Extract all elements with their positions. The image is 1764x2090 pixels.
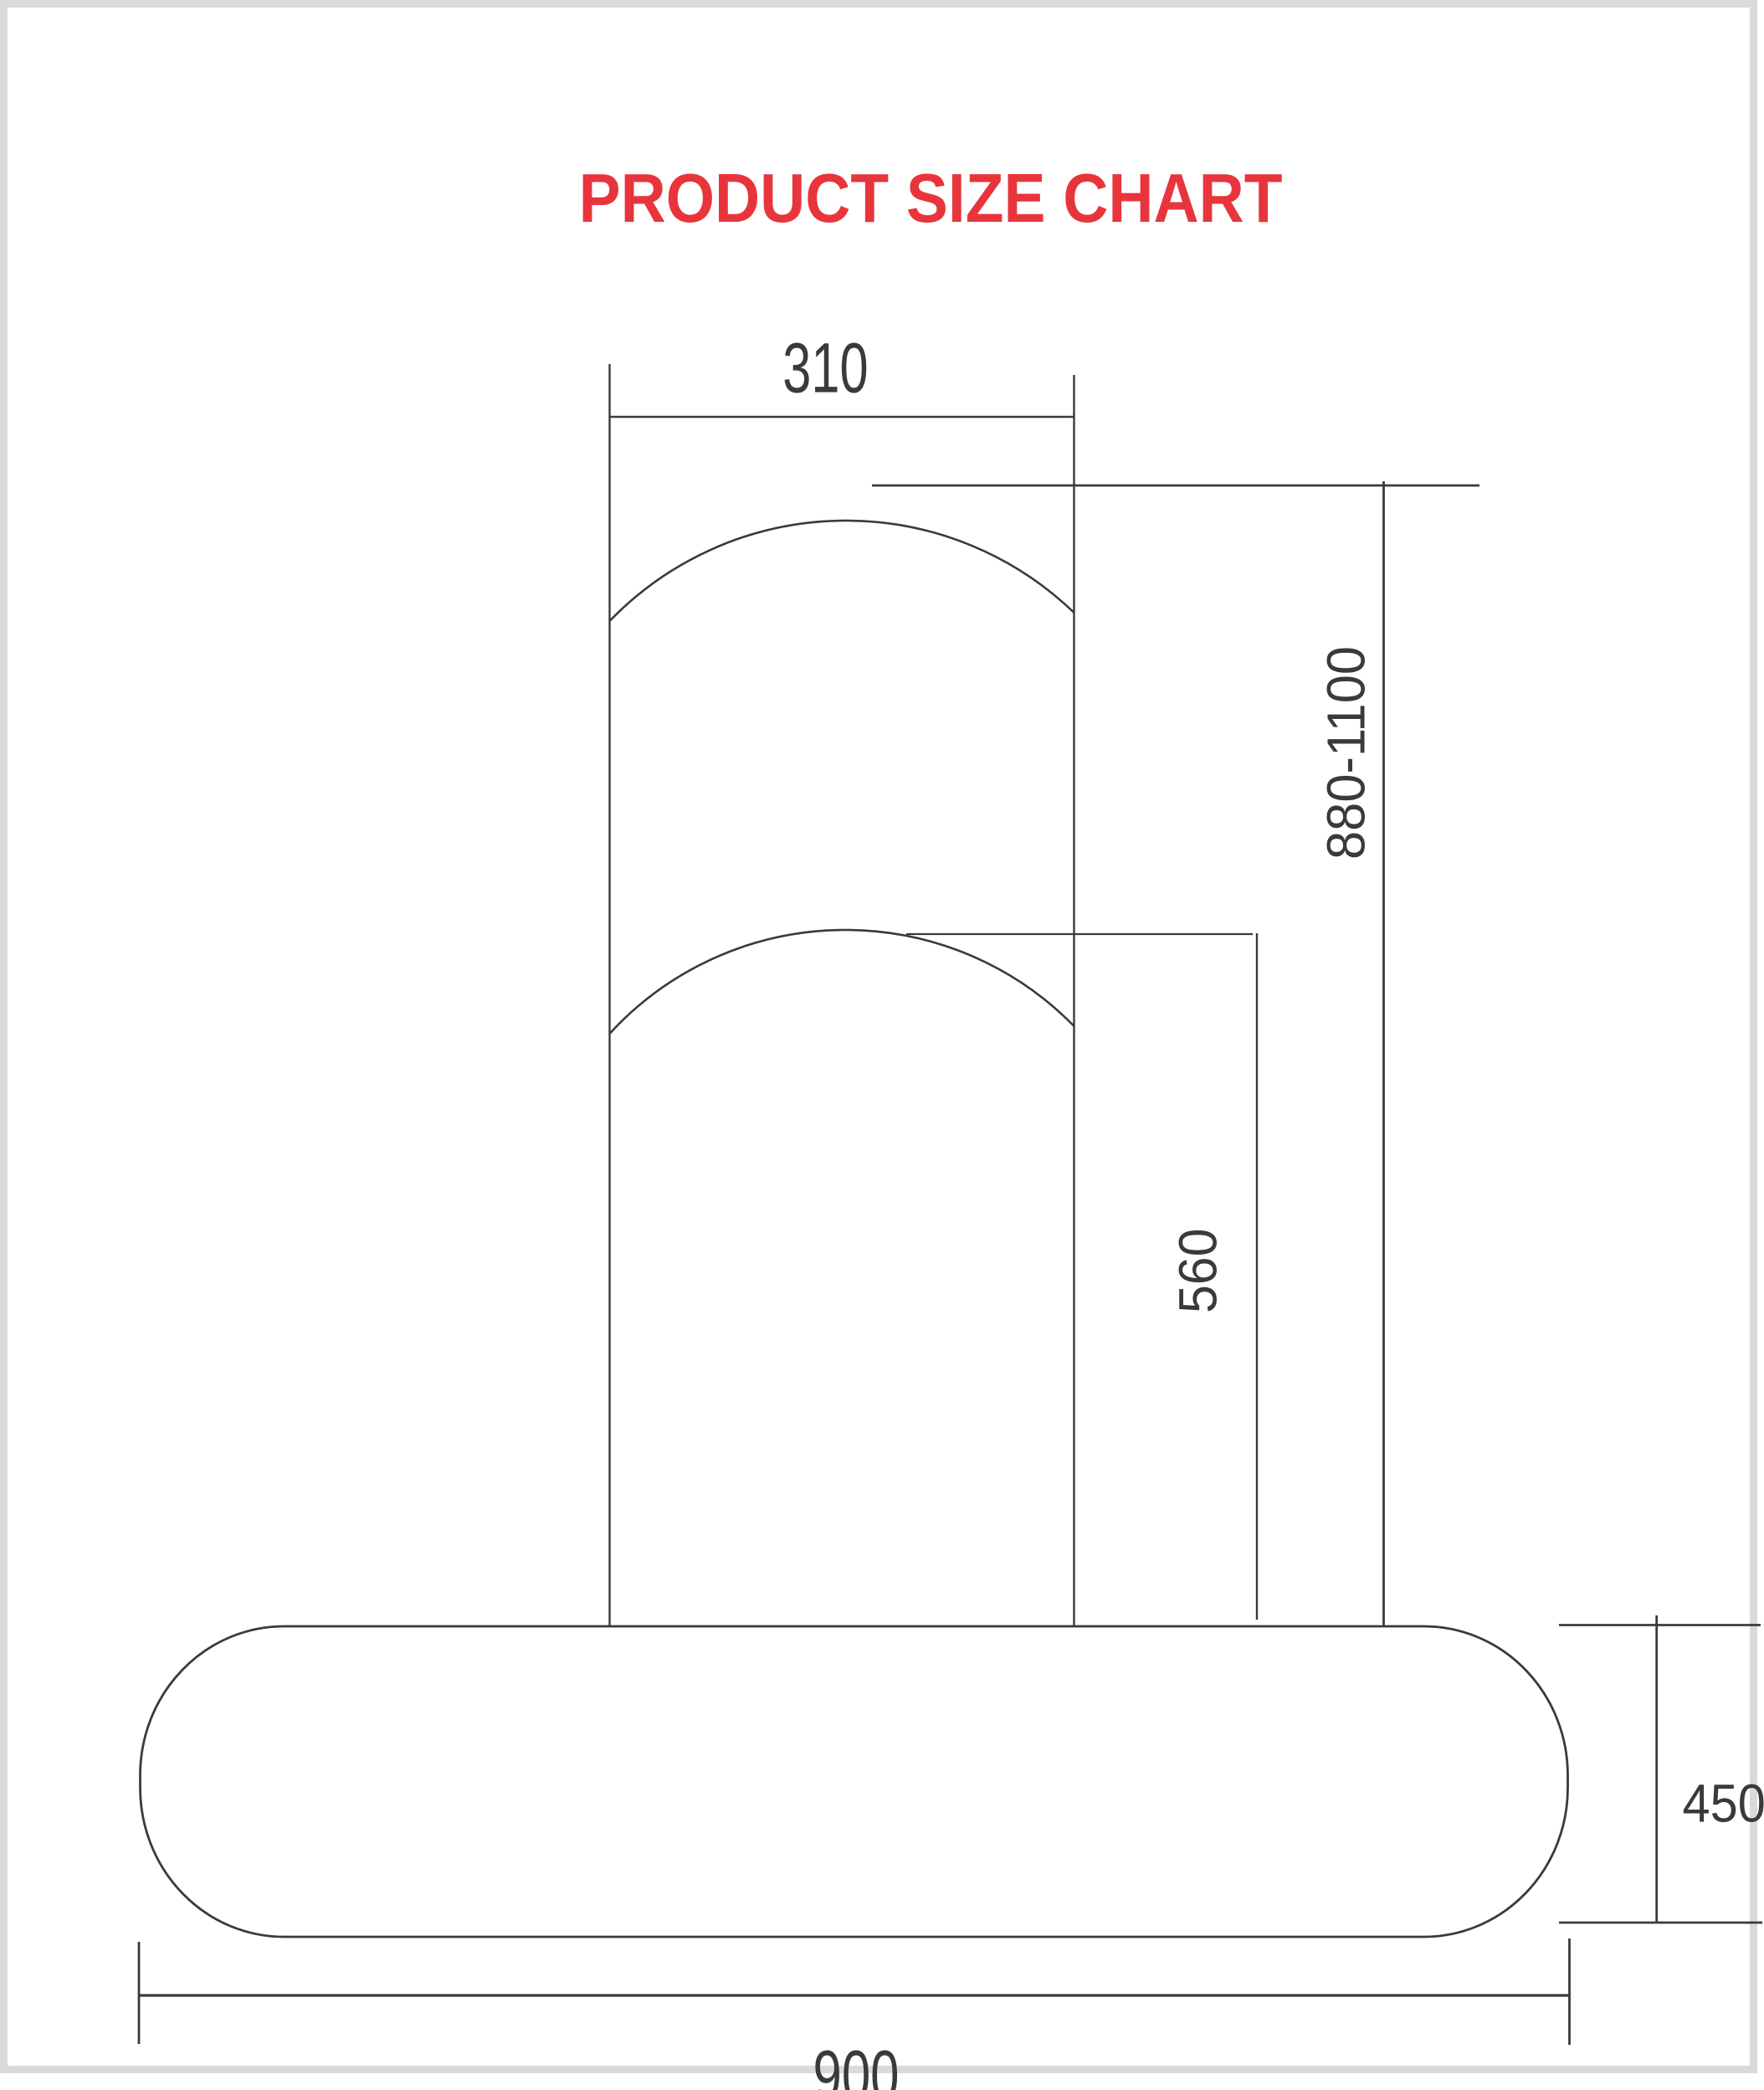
svg-text:900: 900 bbox=[813, 2036, 900, 2090]
svg-text:560: 560 bbox=[1168, 1229, 1228, 1313]
svg-text:310: 310 bbox=[782, 328, 868, 408]
svg-text:880-1100: 880-1100 bbox=[1316, 646, 1376, 860]
svg-text:450: 450 bbox=[1683, 1774, 1764, 1834]
svg-text:PRODUCT SIZE CHART: PRODUCT SIZE CHART bbox=[579, 158, 1283, 236]
